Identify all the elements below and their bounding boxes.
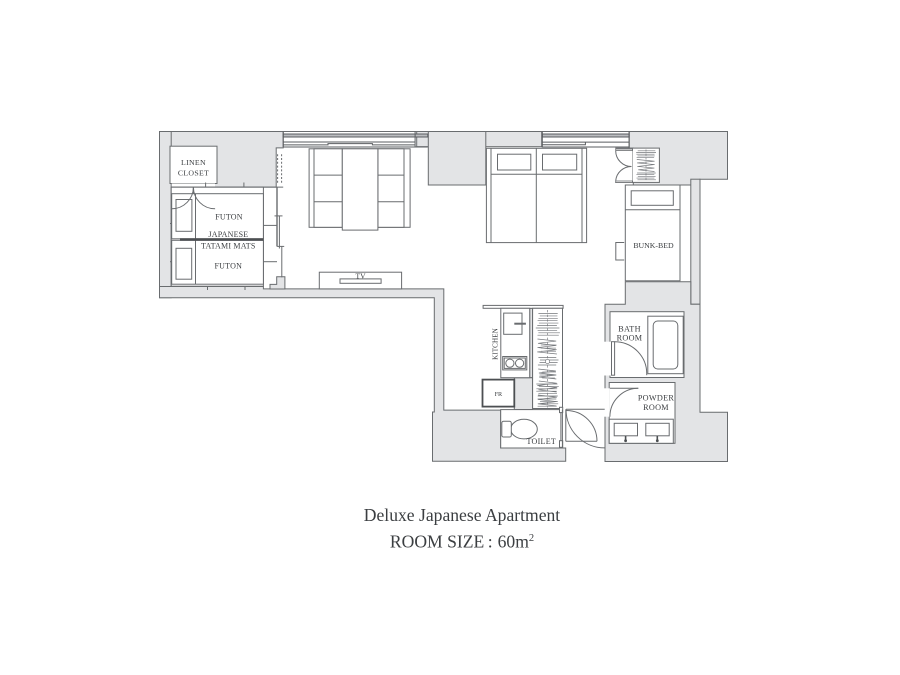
svg-text:POWDER: POWDER [638,394,675,403]
svg-text:KITCHEN: KITCHEN [492,328,500,360]
svg-text:JAPANESE: JAPANESE [208,230,248,239]
svg-text:TATAMI MATS: TATAMI MATS [201,242,255,251]
svg-text:CLOSET: CLOSET [178,168,209,177]
svg-text:Deluxe Japanese Apartment: Deluxe Japanese Apartment [364,505,561,525]
svg-text:TOILET: TOILET [526,437,556,446]
svg-text:ROOM: ROOM [643,403,669,412]
svg-text:FUTON: FUTON [215,212,243,221]
svg-text:BUNK-BED: BUNK-BED [633,241,674,250]
svg-text:BATH: BATH [618,324,641,333]
svg-text:ROOM: ROOM [617,334,643,343]
svg-text:TV: TV [356,271,367,280]
svg-text:FUTON: FUTON [215,262,243,271]
svg-text:FR: FR [495,391,503,398]
svg-text:LINEN: LINEN [181,158,206,167]
svg-text:ROOM SIZE:60m2: ROOM SIZE:60m2 [390,532,534,552]
